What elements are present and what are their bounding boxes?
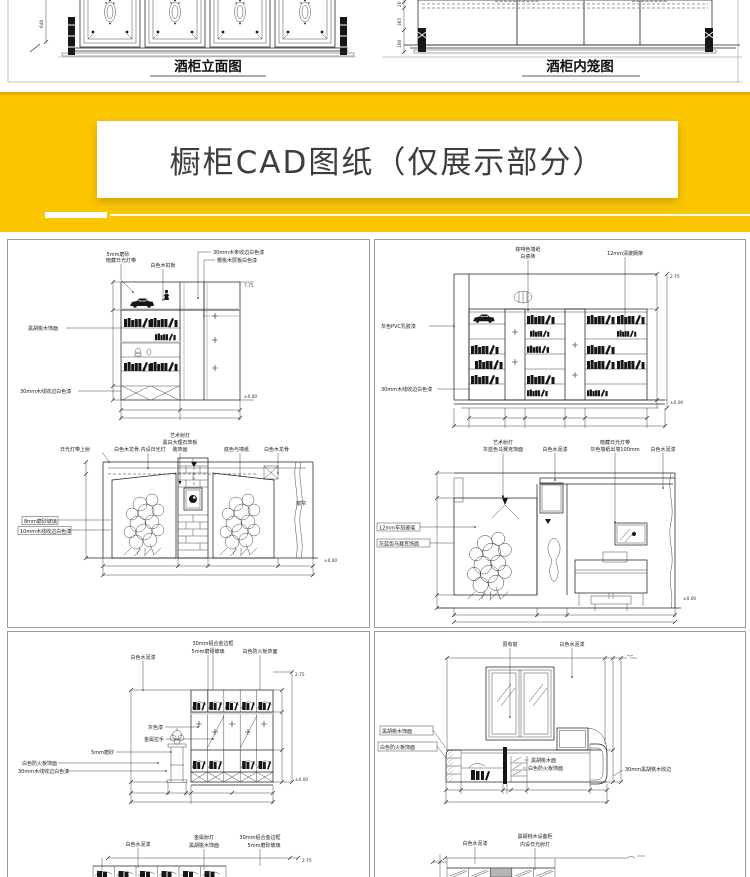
cad-label: 白色水泥漆 — [650, 446, 675, 453]
cad-label: 暗藏日光灯带 — [106, 257, 136, 264]
shelf-books-row — [95, 871, 220, 877]
cad-label: 白色木龙骨,内设日光灯 — [114, 446, 166, 453]
cad-label: 5mm磨砂 — [91, 749, 114, 756]
cad-label: 白色木龙骨 — [264, 446, 289, 453]
elevation-mark: 7.75 — [244, 283, 254, 289]
wine-cabinet-elevation: 640 酒柜立面图 — [30, 0, 356, 76]
elevation-mark: 2.75 — [302, 858, 312, 864]
elevation-mark: ±0.00 — [683, 596, 696, 602]
drawing-feature-wall: 日光灯带上射 白色木龙骨,内设日光灯 艺术射灯 黑白大理石饰板 装饰画 底色与墙… — [18, 432, 337, 577]
sheet-border — [8, 0, 742, 82]
banner-title: 橱柜CAD图纸（仅展示部分） — [170, 137, 606, 182]
cad-label: 白色水泥漆 — [130, 654, 155, 661]
product-detail-image: 640 酒柜立面图 20 365 100 — [0, 0, 750, 877]
cad-label: 艺术射灯 — [493, 439, 513, 446]
cad-label: 黑胡桃木饰面 — [382, 728, 412, 735]
cad-label: 灰蓝色马赛克饰面 — [379, 541, 419, 548]
caption-wine-cabinet-cage: 酒柜内笼图 — [546, 58, 614, 74]
cad-label: 30mm木线收边白色漆 — [20, 388, 71, 395]
dim-label: 365 — [397, 18, 403, 26]
drawing-arched-shelf-partial: 白色水泥漆 金属射灯 黑胡桃木饰面 30mm铝合金边框 5mm磨砂玻璃 2.75 — [93, 834, 312, 877]
cad-label: 原有窗 — [502, 641, 517, 648]
cad-label: 30mm木条收边白色漆 — [213, 249, 264, 256]
cad-label: 内设日光射灯 — [520, 841, 550, 848]
cad-label: 30mm铝合金边框 — [192, 640, 233, 647]
cad-label: 灰色漆 — [148, 724, 163, 731]
banner-title-box: 橱柜CAD图纸（仅展示部分） — [97, 121, 678, 198]
wine-cabinet-inner-cage: 20 365 100 酒柜内笼图 — [382, 0, 742, 76]
cad-panel-1: 5mm磨砂 暗藏日光灯带 白色木扣板 30mm木条收边白色漆 樱桃木层板白色漆 … — [7, 239, 370, 628]
cad-label: 白瓷砖 — [520, 253, 535, 260]
dim-label: 20 — [397, 1, 403, 7]
drawing-tv-cabinet: 原有窗 白色水泥漆 30m — [378, 641, 671, 804]
elevation-mark: ±0.00 — [295, 777, 308, 783]
drawing-bookshelf: 棕啡色墙纸 白瓷砖 12mm清玻搁架 灰色PVC乳胶漆 30mm木线收边白色漆 — [381, 246, 683, 428]
cad-label: 金属射灯 — [194, 834, 214, 841]
banner-deco-line — [110, 214, 750, 216]
cad-label: 艺术射灯 — [170, 432, 190, 439]
cad-label: 白色防火板饰面 — [380, 744, 415, 751]
elevation-mark: ±0.00 — [670, 400, 683, 406]
cad-label: 黑胡桃木饰面 — [28, 325, 58, 332]
cad-label: 装饰画 — [172, 446, 187, 453]
cad-label: 白色水泥漆 — [125, 841, 150, 848]
elevation-mark: 2.75 — [670, 274, 680, 280]
cad-label: 底色与墙纸 — [224, 446, 249, 453]
cad-panel-3: 白色水泥漆 30mm铝合金边框 5mm磨砂玻璃 白色防火板饰面 灰色漆 金属拉手… — [7, 631, 370, 877]
cad-label: 棕啡色墙纸 — [515, 246, 540, 253]
banner-top-edge — [0, 92, 750, 95]
cad-label: 5mm磨砂玻璃 — [248, 842, 281, 849]
elevation-mark: ±0.00 — [324, 558, 337, 564]
cad-label: 白色防火板饰面 — [528, 765, 563, 772]
caption-wine-cabinet-elevation: 酒柜立面图 — [174, 58, 242, 74]
cad-label: 5mm磨砂 — [107, 251, 130, 258]
elevation-mark: ±0.00 — [244, 394, 257, 400]
dim-label: 100 — [397, 40, 403, 48]
cad-label: 灰色PVC乳胶漆 — [381, 323, 416, 330]
cad-label: 30mm木线收边白色漆 — [18, 768, 69, 775]
cad-label: 黑胡桃木面 — [531, 757, 556, 764]
dim-label: 640 — [39, 20, 45, 28]
promo-banner: 橱柜CAD图纸（仅展示部分） — [0, 92, 750, 232]
cad-label: 灰色墙纸出墙100mm — [590, 446, 639, 453]
cad-label: 黑胡桃木饰面 — [189, 842, 219, 849]
cad-label: 12mm清玻搁架 — [607, 250, 643, 257]
elevation-mark: 2.75 — [295, 672, 305, 678]
cad-label: 白色防火板饰面 — [22, 760, 57, 767]
cad-label: 8mm磨砂玻璃 — [24, 518, 57, 525]
cad-label: 10mm木线收边白色漆 — [20, 528, 71, 535]
cad-label: 30mm铝合金边框 — [239, 834, 280, 841]
cad-label: 暗藏日光灯带 — [600, 439, 630, 446]
cad-label: 30mm木线收边白色漆 — [381, 386, 432, 393]
cad-label: 白色水泥漆 — [542, 446, 567, 453]
cad-label: 白色防火板饰面 — [242, 648, 277, 655]
top-cad-sheet: 640 酒柜立面图 20 365 100 — [0, 0, 750, 90]
cad-label: 白色水泥漆 — [559, 641, 584, 648]
cad-label: 灰蓝色马赛克饰面 — [483, 446, 523, 453]
cad-label: 日光灯带上射 — [60, 446, 90, 453]
cad-label: 白色木扣板 — [150, 262, 175, 269]
drawing-display-cabinet: 5mm磨砂 暗藏日光灯带 白色木扣板 30mm木条收边白色漆 樱桃木层板白色漆 … — [20, 249, 264, 420]
banner-deco-dash — [45, 212, 107, 218]
drawing-glass-cabinet: 白色水泥漆 30mm铝合金边框 5mm磨砂玻璃 白色防火板饰面 灰色漆 金属拉手… — [18, 640, 308, 804]
cad-panel-2: 棕啡色墙纸 白瓷砖 12mm清玻搁架 灰色PVC乳胶漆 30mm木线收边白色漆 — [374, 239, 746, 628]
drawing-equipment-cabinet-partial: 白色水泥漆 黑胡桃木设备柜 内设日光射灯 — [431, 833, 645, 877]
drawing-piano-room: 艺术射灯 灰蓝色马赛克饰面 白色水泥漆 暗藏日光灯带 灰色墙纸出墙100mm 白… — [377, 439, 696, 624]
cad-label: 樱桃木层板白色漆 — [217, 257, 257, 264]
cad-label: 30mm黑胡桃木收边 — [625, 766, 671, 773]
cad-label: 12mm车刻玻璃 — [379, 525, 415, 532]
cad-label: 白色水泥漆 — [462, 840, 487, 847]
cad-label: 窗帘 — [296, 500, 306, 507]
cad-label: 黑胡桃木设备柜 — [517, 833, 552, 840]
cad-label: 金属拉手 — [144, 736, 164, 743]
cad-label: 黑白大理石饰板 — [162, 439, 197, 446]
cad-panel-4: 原有窗 白色水泥漆 30m — [374, 631, 746, 877]
cad-label: 5mm磨砂玻璃 — [192, 648, 225, 655]
